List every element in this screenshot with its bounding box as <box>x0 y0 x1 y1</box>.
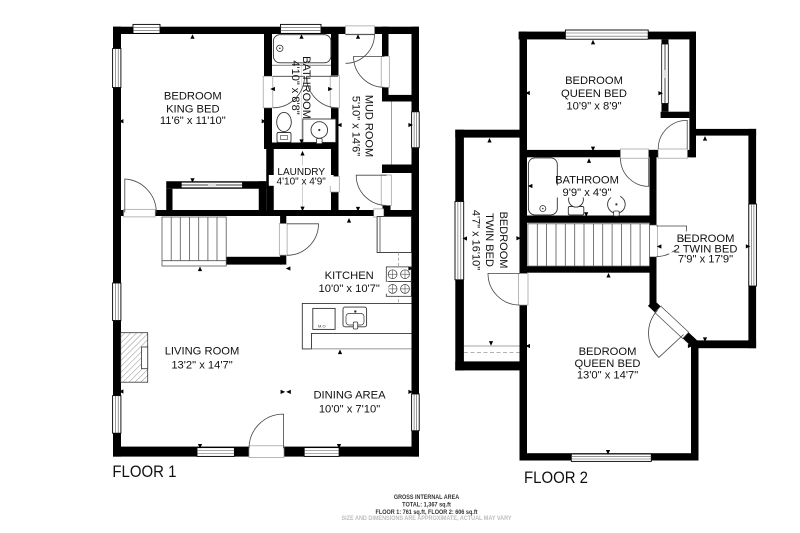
svg-text:10'0" x 10'7": 10'0" x 10'7" <box>319 283 380 295</box>
svg-text:BEDROOM: BEDROOM <box>164 90 222 102</box>
svg-text:TOTAL: 1,367 sq.ft: TOTAL: 1,367 sq.ft <box>402 502 451 509</box>
svg-text:GROSS INTERNAL AREA: GROSS INTERNAL AREA <box>394 494 459 501</box>
svg-text:TWIN BED: TWIN BED <box>483 213 495 267</box>
svg-text:DINING AREA: DINING AREA <box>313 390 386 402</box>
svg-text:QUEEN BED: QUEEN BED <box>561 88 627 100</box>
svg-text:4'10" x 4'9": 4'10" x 4'9" <box>277 176 327 187</box>
svg-text:FLOOR 2: FLOOR 2 <box>524 468 588 487</box>
svg-text:BEDROOM: BEDROOM <box>565 75 623 87</box>
svg-text:BEDROOM: BEDROOM <box>497 212 509 269</box>
svg-text:M.O: M.O <box>318 324 326 329</box>
svg-text:BATHROOM: BATHROOM <box>555 174 619 186</box>
svg-text:QUEEN BED: QUEEN BED <box>575 358 641 370</box>
svg-text:BEDROOM: BEDROOM <box>579 346 637 358</box>
svg-text:7'9" x 17'9": 7'9" x 17'9" <box>678 254 733 266</box>
svg-text:KING BED: KING BED <box>166 103 219 115</box>
svg-text:FLOOR 1: FLOOR 1 <box>112 462 176 481</box>
svg-text:4'7" x 16'10": 4'7" x 16'10" <box>469 210 481 270</box>
svg-text:13'0" x 14'7": 13'0" x 14'7" <box>577 369 638 381</box>
svg-text:13'2" x 14'7": 13'2" x 14'7" <box>171 359 232 371</box>
svg-text:KITCHEN: KITCHEN <box>325 270 374 282</box>
svg-text:5'10" x 14'6": 5'10" x 14'6" <box>349 96 361 156</box>
svg-text:MUD ROOM: MUD ROOM <box>363 95 375 157</box>
svg-text:10'0" x 7'10": 10'0" x 7'10" <box>319 403 380 415</box>
svg-text:9'9" x 4'9": 9'9" x 4'9" <box>563 187 612 199</box>
svg-text:LIVING ROOM: LIVING ROOM <box>165 346 240 358</box>
svg-text:SIZE AND DIMENSIONS ARE APPROX: SIZE AND DIMENSIONS ARE APPROXIMATE, ACT… <box>342 515 512 522</box>
svg-text:11'6" x 11'10": 11'6" x 11'10" <box>160 115 226 127</box>
svg-text:4'10" x 8'8": 4'10" x 8'8" <box>289 60 301 114</box>
svg-text:10'9" x 8'9": 10'9" x 8'9" <box>566 101 621 113</box>
